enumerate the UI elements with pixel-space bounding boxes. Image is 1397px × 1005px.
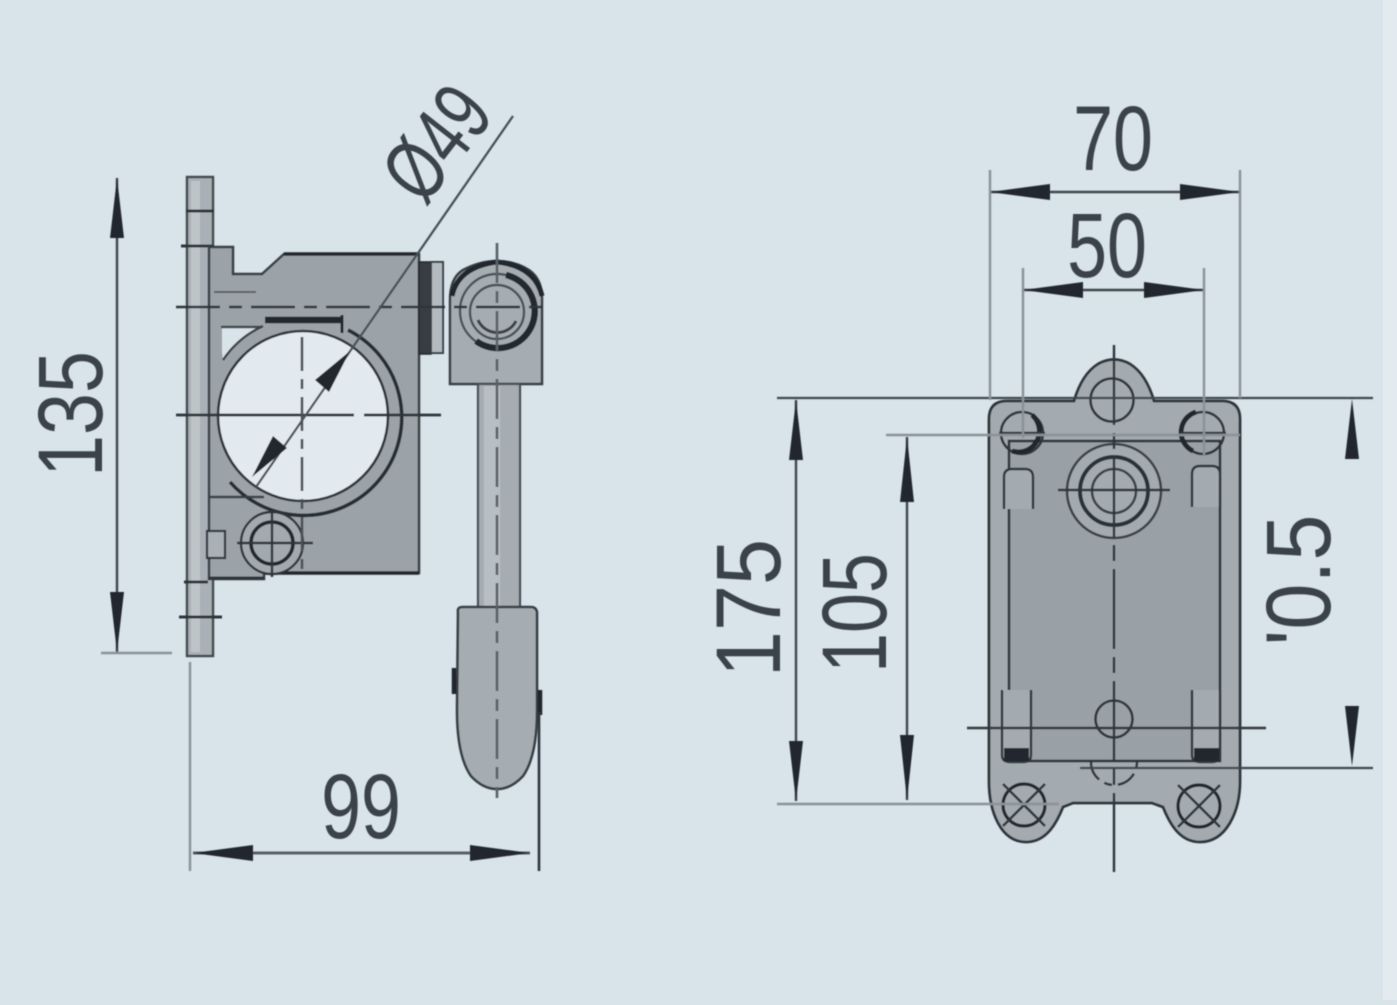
svg-text:135: 135: [19, 351, 122, 477]
svg-text:99: 99: [321, 755, 401, 858]
svg-text:'0.5: '0.5: [1247, 515, 1350, 646]
svg-text:50: 50: [1067, 194, 1147, 297]
svg-text:175: 175: [697, 539, 800, 677]
svg-text:105: 105: [803, 553, 906, 673]
svg-text:70: 70: [1073, 87, 1153, 190]
